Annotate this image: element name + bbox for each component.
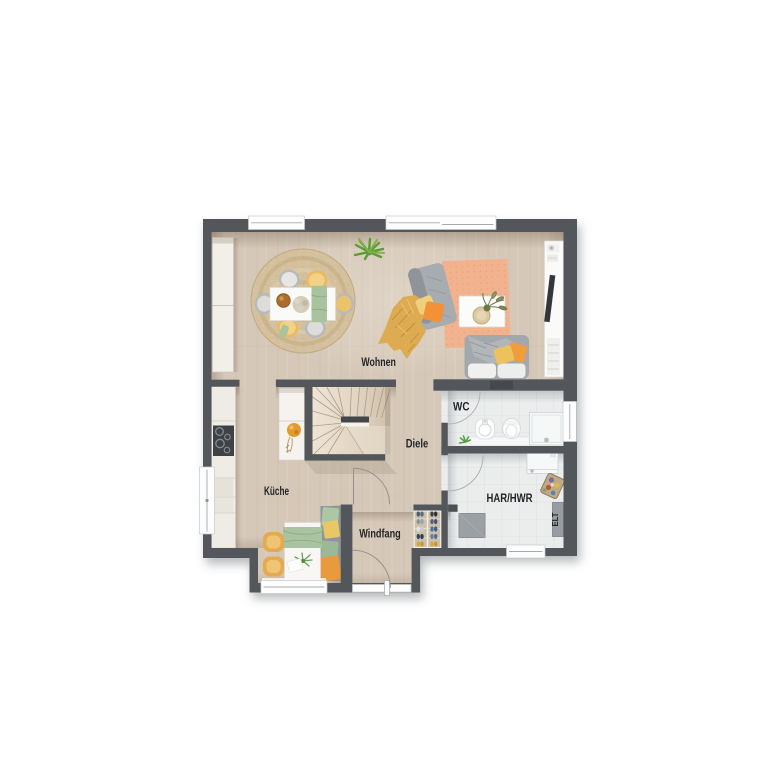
svg-text:Küche: Küche <box>264 486 289 498</box>
svg-text:WC: WC <box>453 401 470 413</box>
svg-text:Diele: Diele <box>406 438 429 450</box>
svg-text:Windfang: Windfang <box>359 529 401 541</box>
svg-text:HAR/HWR: HAR/HWR <box>487 493 534 505</box>
svg-text:Wohnen: Wohnen <box>361 357 396 369</box>
svg-text:ELT: ELT <box>551 512 560 526</box>
